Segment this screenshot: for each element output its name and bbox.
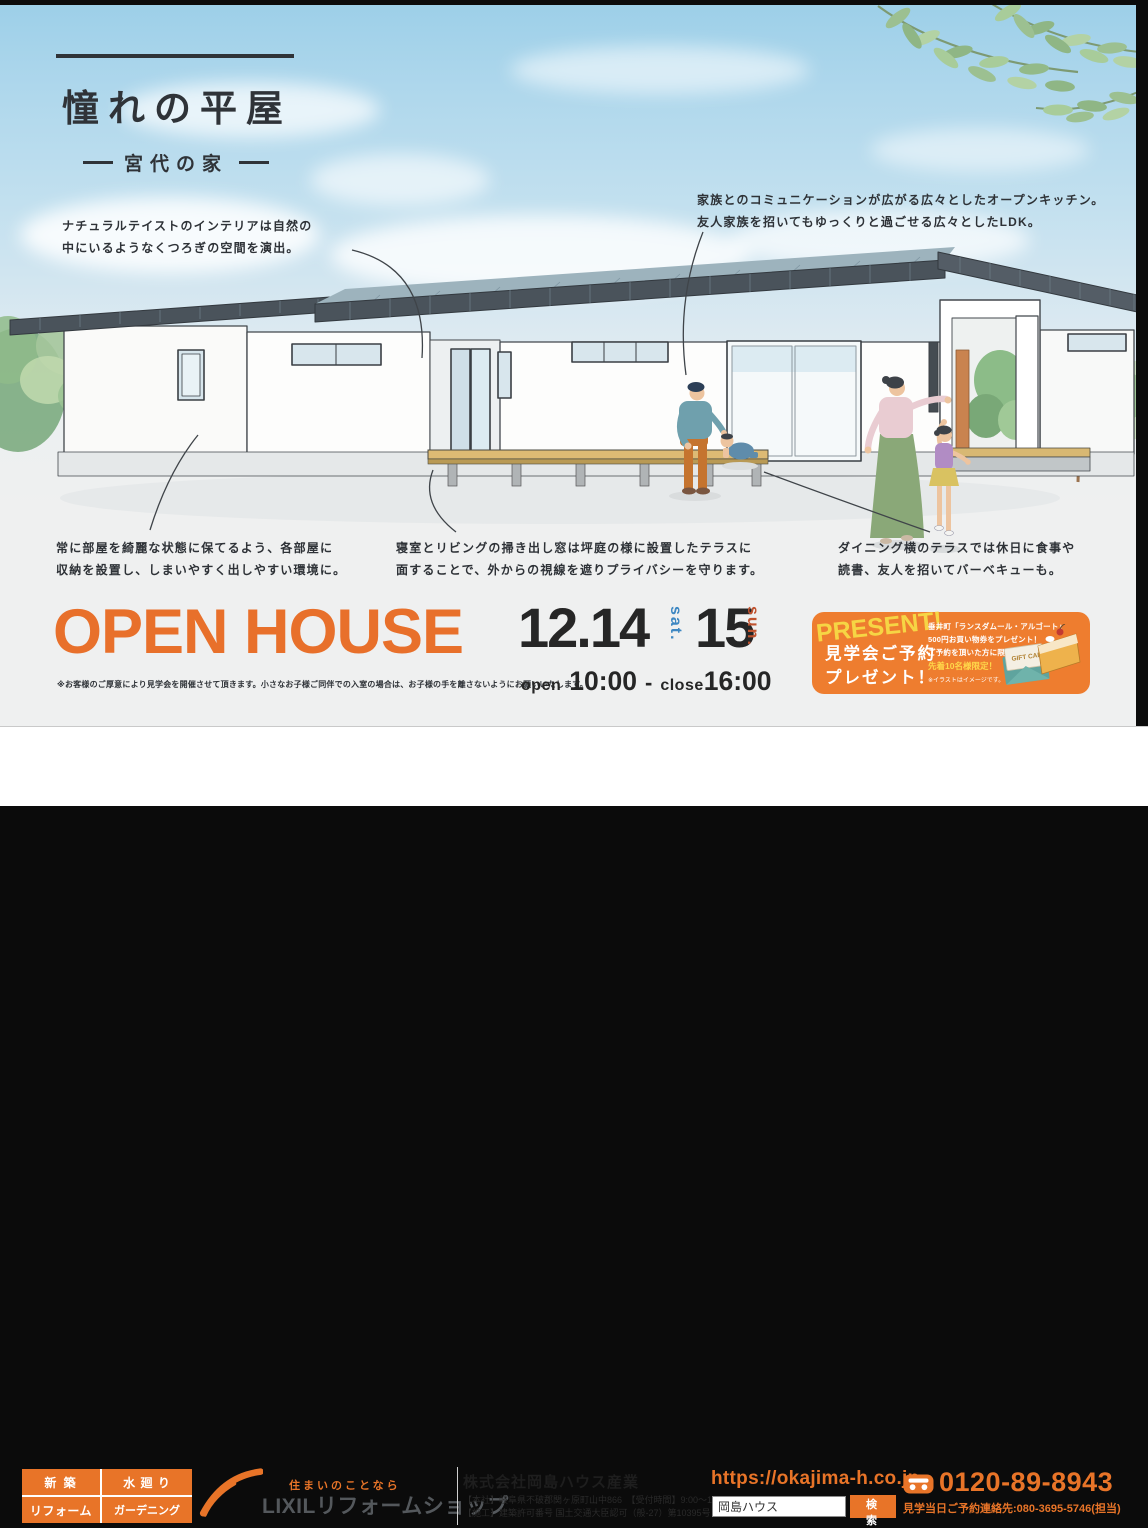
present-title: 見学会ご予約 プレゼント！ bbox=[825, 643, 936, 691]
gift-illustration: GIFT CARD bbox=[1002, 624, 1088, 690]
annotation-privacy: 寝室とリビングの掃き出し窓は坪庭の様に設置したテラスに 面することで、外からの視… bbox=[396, 538, 763, 581]
page-title: 憧れの平屋 bbox=[56, 78, 296, 132]
phone-number: 0120-89-8943 bbox=[939, 1467, 1113, 1498]
open-house-heading: OPEN HOUSE bbox=[53, 596, 463, 668]
house-illustration bbox=[10, 247, 1136, 476]
close-time: 16:00 bbox=[704, 666, 772, 697]
annotation-interior: ナチュラルテイストのインテリアは自然の 中にいるようなくつろぎの空間を演出。 bbox=[62, 216, 312, 259]
cake-icon bbox=[1038, 624, 1080, 674]
company-address: 【本社】岐阜県不破郡関ヶ原町山中866 【受付時間】9:00～17:00 bbox=[463, 1493, 730, 1506]
lixil-swoosh-logo bbox=[197, 1467, 263, 1517]
hours-separator: - bbox=[645, 670, 652, 696]
close-label: close bbox=[660, 677, 703, 695]
search-button[interactable]: 検 索 bbox=[850, 1495, 896, 1518]
footer: 新 築 水 廻 り リフォーム ガーデニング 住まいのことなら LIXILリフォ… bbox=[0, 726, 1148, 807]
service-reform: リフォーム bbox=[22, 1497, 100, 1523]
title-rule bbox=[56, 54, 294, 58]
open-house-disclaimer: ※お客様のご厚意により見学会を開催させて頂きます。小さなお子様ご同伴での入室の場… bbox=[57, 679, 588, 690]
service-mizumawari: 水 廻 り bbox=[102, 1469, 192, 1495]
footer-divider bbox=[457, 1467, 458, 1525]
event-hours: open 10:00 - close 16:00 bbox=[521, 666, 772, 697]
event-date-1: 12.14 bbox=[518, 600, 648, 656]
company-name: 株式会社岡島ハウス産業 bbox=[463, 1471, 639, 1492]
frame-right bbox=[1136, 0, 1148, 726]
leaves-decoration bbox=[878, 0, 1136, 124]
title-dash-left bbox=[83, 161, 113, 164]
freedial-phone-icon bbox=[903, 1474, 934, 1494]
entry-door bbox=[956, 350, 969, 452]
annotation-kitchen: 家族とのコミュニケーションが広がる広々としたオープンキッチン。 友人家族を招いて… bbox=[697, 190, 1104, 233]
flyer-canvas: 憧れの平屋 宮代の家 ナチュラルテイストのインテリアは自然の 中にいるようなくつ… bbox=[0, 0, 1148, 816]
title-dash-right bbox=[239, 161, 269, 164]
event-day-sat: sat. bbox=[666, 606, 684, 642]
flyer-body: 憧れの平屋 宮代の家 ナチュラルテイストのインテリアは自然の 中にいるようなくつ… bbox=[0, 0, 1136, 726]
open-label: open bbox=[521, 677, 561, 695]
porch-column bbox=[1016, 316, 1038, 452]
company-license: 【施工】建築許可番号 国土交通大臣認可（般-27）第10395号 bbox=[463, 1506, 711, 1519]
page-subtitle: 宮代の家 bbox=[124, 149, 228, 176]
search-input[interactable] bbox=[712, 1496, 846, 1517]
service-gardening: ガーデニング bbox=[102, 1497, 192, 1523]
open-time: 10:00 bbox=[569, 666, 637, 697]
title-block: 憧れの平屋 宮代の家 bbox=[56, 54, 296, 176]
frame-bottom bbox=[0, 806, 1148, 816]
frame-top bbox=[0, 0, 1148, 5]
service-grid: 新 築 水 廻 り リフォーム ガーデニング bbox=[22, 1469, 192, 1523]
website-url: https://okajima-h.co.jp bbox=[711, 1468, 920, 1490]
event-day-sun: sun. bbox=[743, 606, 761, 647]
reservation-contact: 見学当日ご予約連絡先:080-3695-5746(担当) bbox=[903, 1500, 1121, 1516]
service-shinchiku: 新 築 bbox=[22, 1469, 100, 1495]
annotation-storage: 常に部屋を綺麗な状態に保てるよう、各部屋に 収納を設置し、しまいやすく出しやすい… bbox=[56, 538, 346, 581]
annotation-terrace: ダイニング横のテラスでは休日に食事や 読書、友人を招いてバーベキューも。 bbox=[838, 538, 1075, 581]
present-banner: PRESENT! 見学会ご予約 プレゼント！ 垂井町「ランスダムール・アルゴート… bbox=[812, 612, 1090, 694]
search-bar: 検 索 bbox=[712, 1495, 896, 1518]
